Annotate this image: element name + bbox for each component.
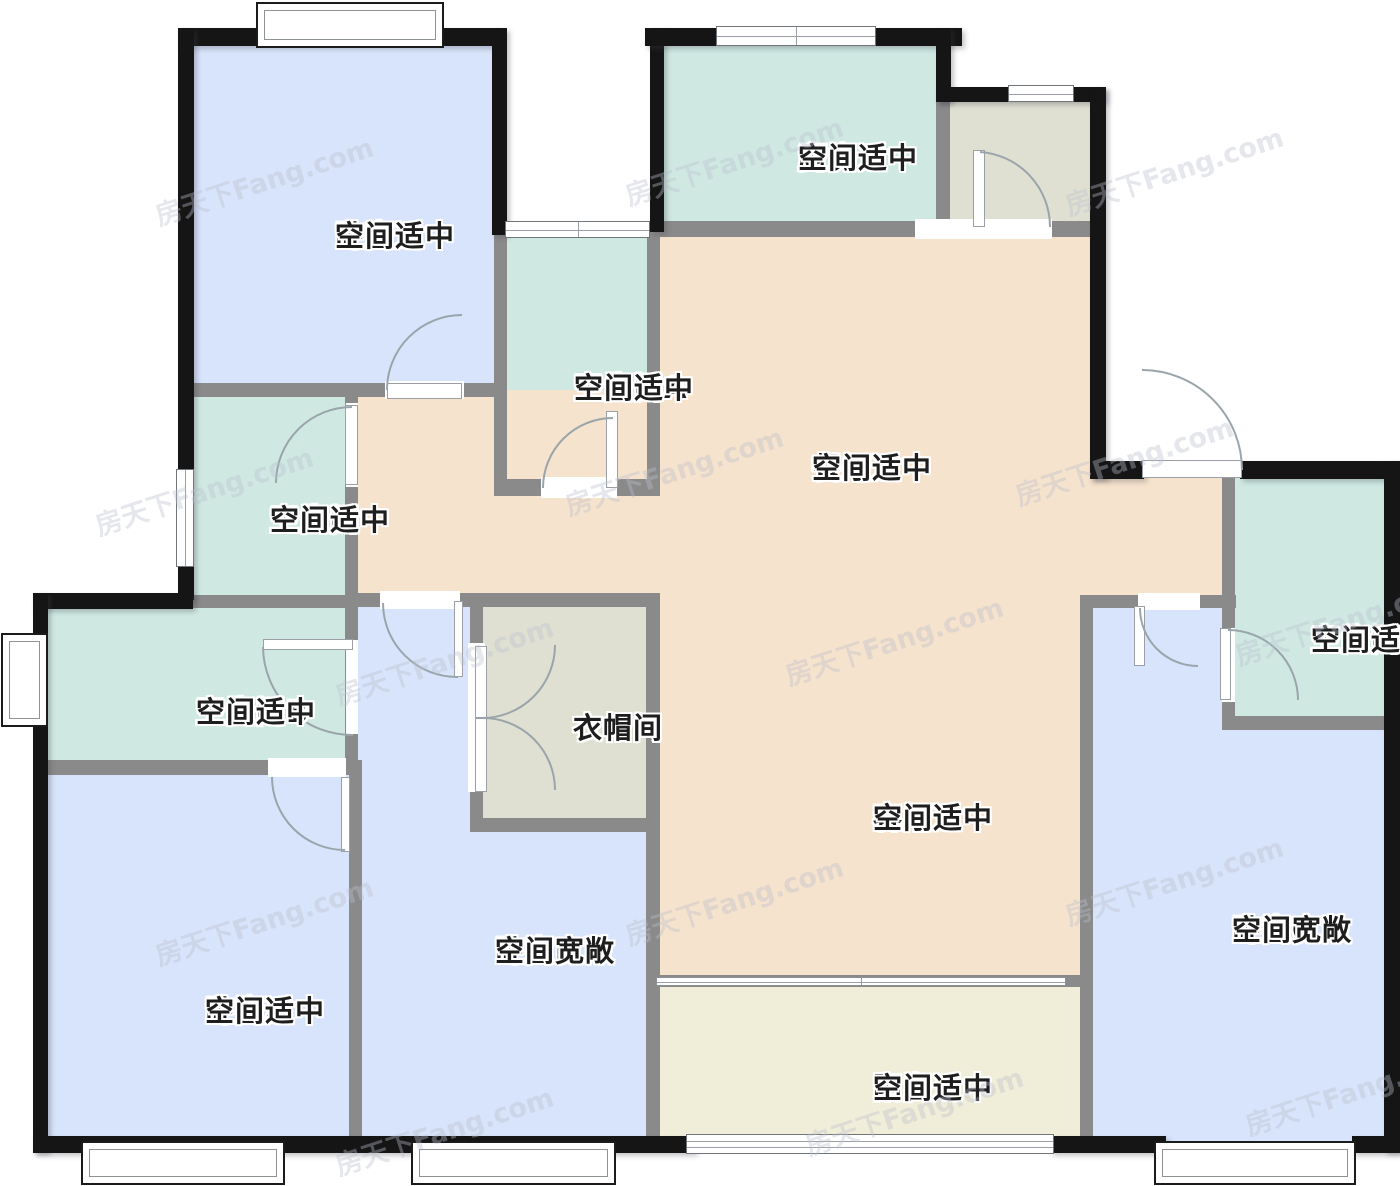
room-bedroom-a-descriptor: 空间适中 — [205, 993, 325, 1030]
room-bath-c-descriptor: 空间适中 — [1311, 622, 1400, 659]
floor-plan: 卧室空间适中厨房空间适中卫生间A空间适中餐厅空间适中客厅空间适中卫生间空间适中卫… — [0, 0, 1400, 1186]
room-bedroom-c-descriptor: 空间宽敞 — [1232, 912, 1352, 949]
door-swing-arc — [1140, 608, 1198, 666]
door-swing-arc — [387, 315, 462, 390]
room-cloak-name: 衣帽间 — [573, 710, 663, 747]
room-bedroom-tl-descriptor: 空间适中 — [335, 218, 455, 255]
door-swing-arc — [383, 603, 458, 677]
room-bedroom-b-descriptor: 空间宽敞 — [495, 933, 615, 970]
door-swing-arc — [980, 152, 1050, 227]
room-balcony-descriptor: 空间适中 — [873, 1070, 993, 1107]
door-swing-arc — [482, 645, 555, 718]
door-swing-arc — [482, 718, 555, 790]
room-bath-a-descriptor: 空间适中 — [574, 370, 694, 407]
room-dining-descriptor: 空间适中 — [812, 450, 932, 487]
door-swing-arc — [543, 418, 613, 488]
door-swing-arc — [1142, 370, 1242, 470]
room-kitchen-descriptor: 空间适中 — [798, 140, 918, 177]
room-bath-descriptor: 空间适中 — [270, 502, 390, 539]
room-living-descriptor: 空间适中 — [873, 800, 993, 837]
room-bath-b-descriptor: 空间适中 — [196, 694, 316, 731]
door-swing-arc — [1228, 630, 1298, 700]
door-swing-arc — [276, 407, 352, 483]
door-swing-arc — [272, 777, 345, 850]
